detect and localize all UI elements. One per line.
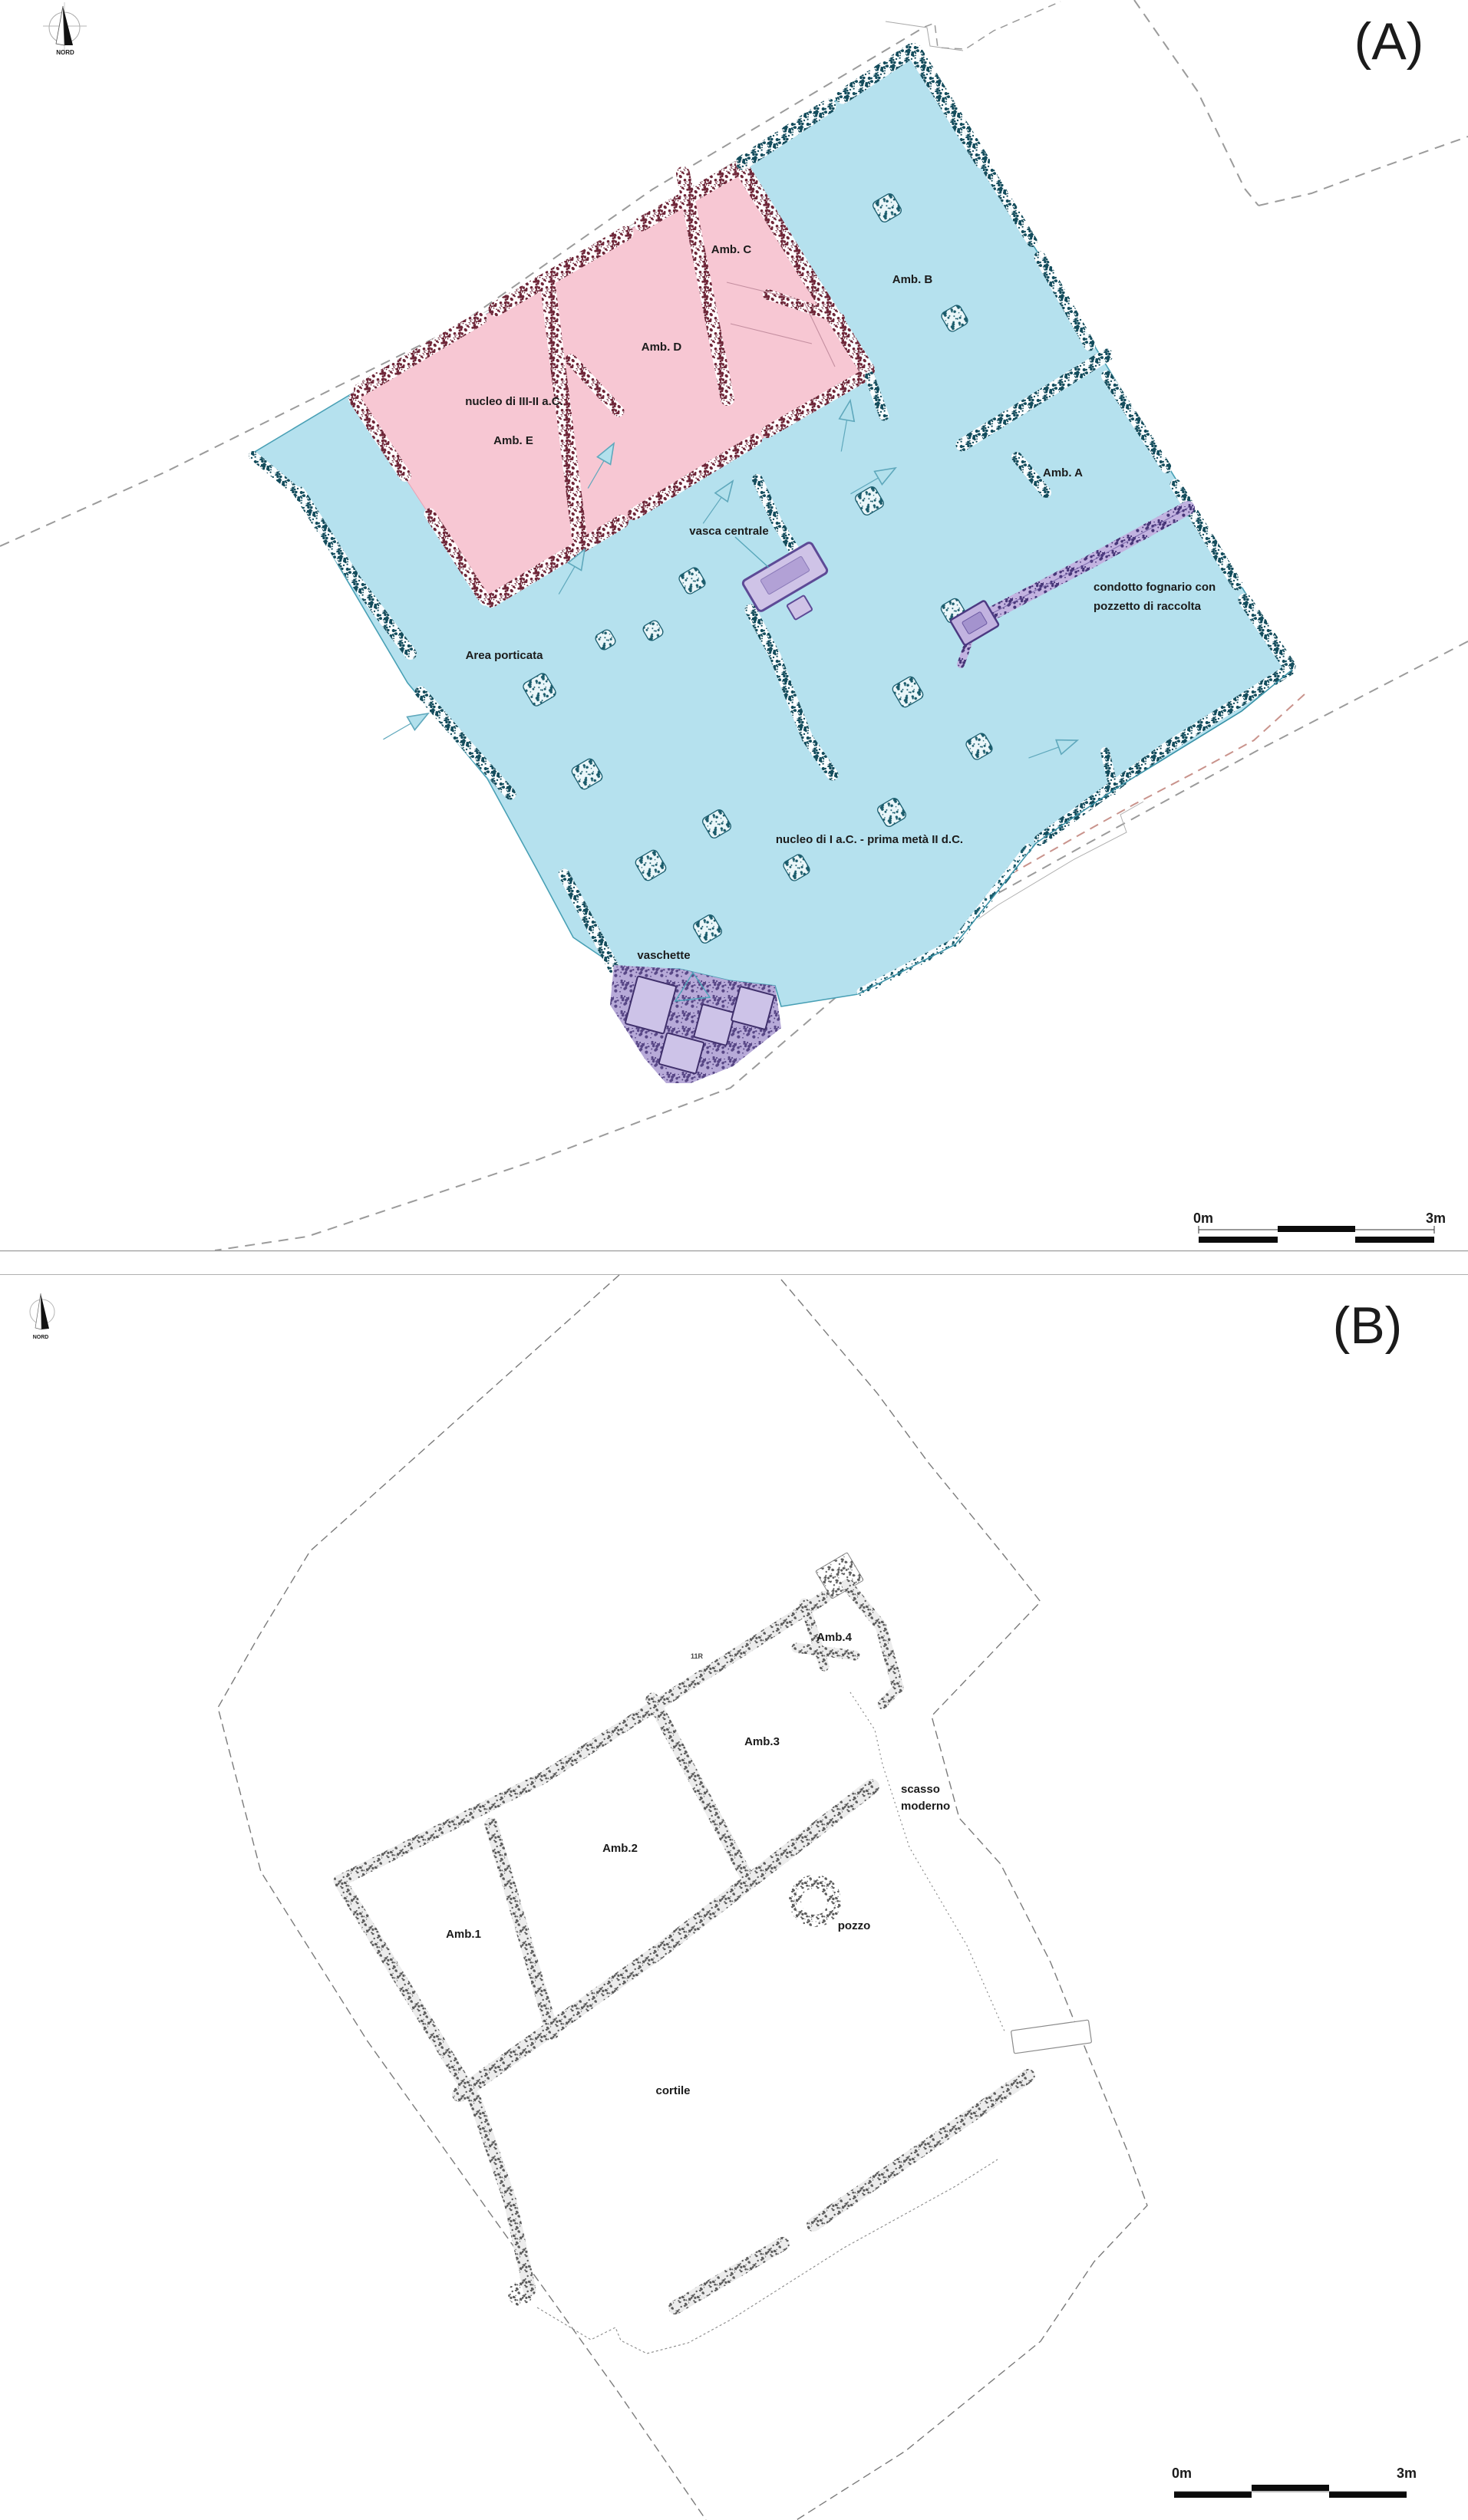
svg-text:vaschette: vaschette [637,949,690,962]
svg-text:Amb. E: Amb. E [493,434,533,447]
svg-text:scasso: scasso [901,1783,940,1796]
svg-text:nucleo di III-II a.C.: nucleo di III-II a.C. [465,395,563,408]
svg-text:nucleo di I a.C. - prima metà: nucleo di I a.C. - prima metà II d.C. [776,833,963,846]
svg-text:pozzetto di raccolta: pozzetto di raccolta [1094,600,1202,613]
svg-text:Amb. A: Amb. A [1043,466,1083,479]
svg-text:Amb.4: Amb.4 [816,1631,853,1644]
svg-text:Amb. D: Amb. D [642,341,682,354]
svg-text:Amb. C: Amb. C [711,243,752,256]
svg-text:moderno: moderno [901,1800,950,1813]
svg-text:11R: 11R [691,1652,704,1660]
svg-text:Amb.2: Amb.2 [602,1842,638,1855]
svg-text:NORD: NORD [56,49,74,56]
svg-text:(A): (A) [1354,12,1424,71]
svg-text:3m: 3m [1426,1211,1446,1226]
svg-text:0m: 0m [1172,2466,1192,2481]
svg-text:Amb.1: Amb.1 [446,1928,481,1941]
svg-text:cortile: cortile [655,2084,690,2097]
svg-text:pozzo: pozzo [838,1919,871,1932]
svg-text:Amb. B: Amb. B [892,273,933,286]
svg-text:NORD: NORD [33,1335,49,1340]
svg-text:(B): (B) [1333,1296,1403,1355]
svg-text:condotto fognario con: condotto fognario con [1094,581,1216,594]
svg-text:Amb.3: Amb.3 [744,1735,780,1748]
svg-text:Area porticata: Area porticata [466,649,544,662]
svg-text:vasca centrale: vasca centrale [689,525,768,538]
svg-text:3m: 3m [1397,2466,1417,2481]
svg-text:0m: 0m [1193,1211,1213,1226]
